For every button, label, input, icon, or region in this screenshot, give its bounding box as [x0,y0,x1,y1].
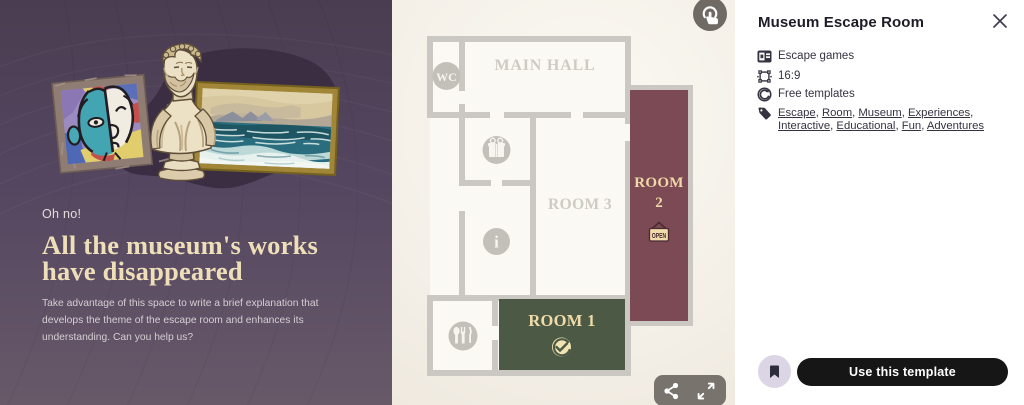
svg-text:ROOM: ROOM [634,175,684,191]
svg-text:MAIN HALL: MAIN HALL [495,57,596,74]
svg-text:WC: WC [436,70,457,84]
svg-text:i: i [494,233,499,252]
svg-text:2: 2 [655,195,663,211]
svg-text:ROOM 1: ROOM 1 [528,311,595,330]
svg-text:OPEN: OPEN [652,231,667,240]
svg-text:ROOM 3: ROOM 3 [548,196,612,213]
